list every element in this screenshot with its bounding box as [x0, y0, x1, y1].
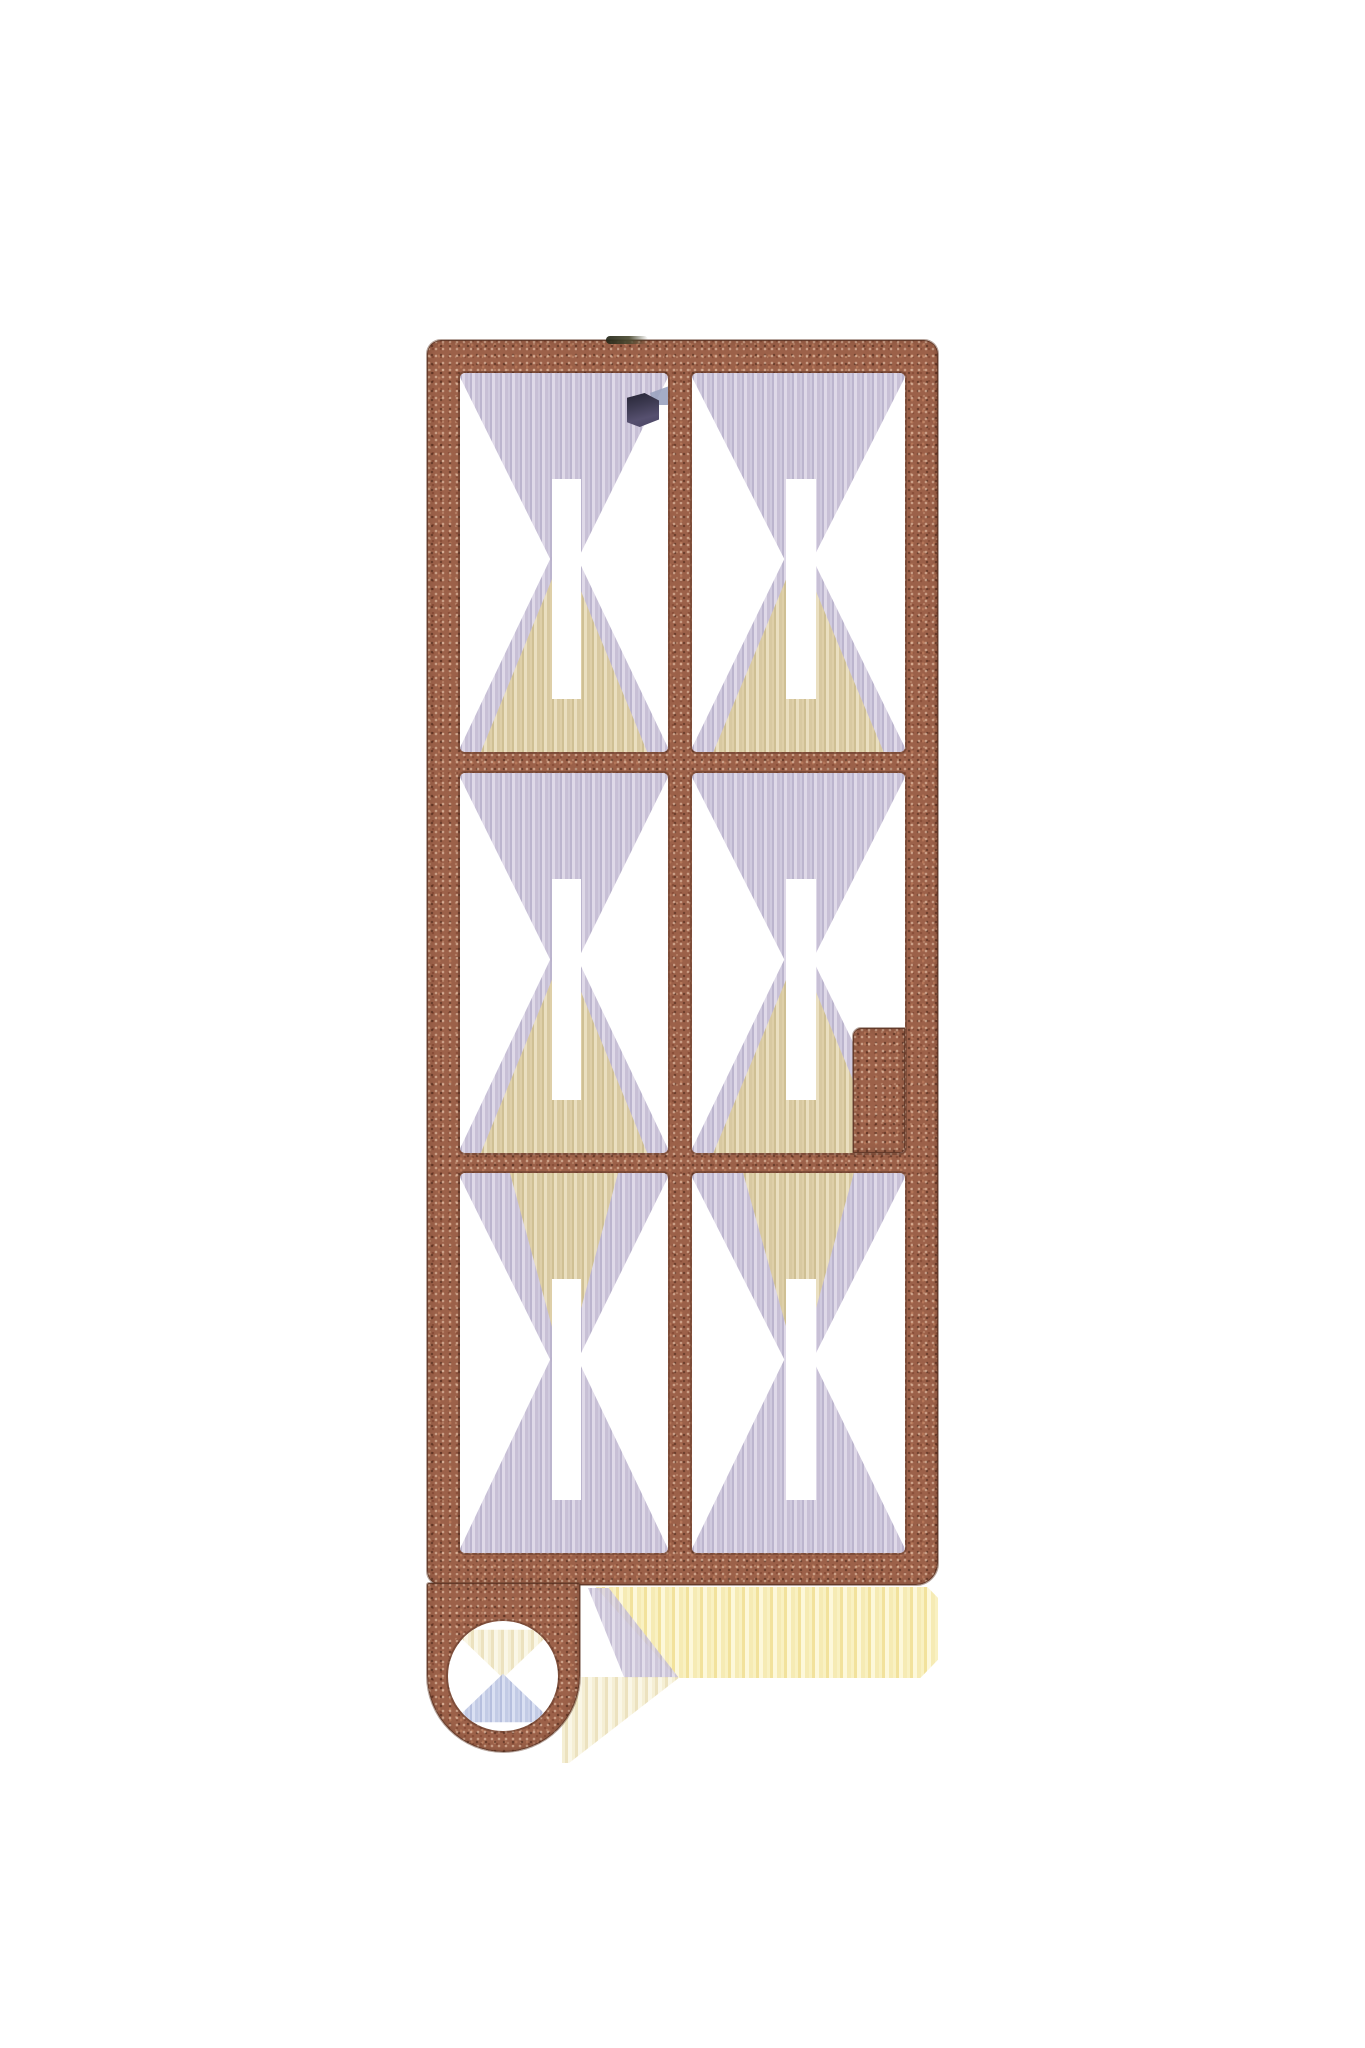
- render-artifact-bottom-tan: [692, 570, 905, 752]
- render-artifact-bottom-wedge: [460, 940, 668, 1153]
- opening-row2-right: [692, 773, 905, 1153]
- frame-body: [427, 340, 938, 1585]
- render-artifact-top-wedge: [460, 373, 668, 578]
- render-artifact-bottom-wedge: [460, 540, 668, 752]
- opening-row2-left: [460, 773, 668, 1153]
- render-artifact-white-column: [786, 879, 816, 1099]
- render-artifact-top-wedge: [692, 1173, 905, 1378]
- drop-shadow-cream-wedge: [562, 1677, 680, 1763]
- render-artifact-top-wedge: [692, 373, 905, 578]
- render-artifact-hole-top: [448, 1621, 558, 1731]
- render-artifact-bottom-wedge: [692, 540, 905, 752]
- render-artifact-hole-bottom: [448, 1621, 558, 1731]
- debris-artifact-sliver: [650, 385, 668, 405]
- render-artifact-top-wedge: [692, 773, 905, 978]
- photo-canvas: [0, 0, 1365, 2048]
- render-artifact-white-column: [552, 1279, 581, 1499]
- render-artifact-white-column: [552, 479, 581, 699]
- opening-row1-right: [692, 373, 905, 752]
- keychain-tab: [427, 1583, 580, 1752]
- render-artifact-bottom-wedge: [692, 1340, 905, 1553]
- render-artifact-bottom-wedge: [460, 1340, 668, 1553]
- render-artifact-white-column: [552, 879, 581, 1099]
- opening-row3-right: [692, 1173, 905, 1553]
- render-artifact-bottom-tan: [460, 570, 668, 752]
- render-artifact-top-wedge: [460, 1173, 668, 1378]
- opening-row3-left: [460, 1173, 668, 1553]
- surface-smudge: [606, 336, 648, 344]
- step-notch: [853, 1028, 905, 1153]
- render-artifact-white-column: [786, 479, 816, 699]
- render-artifact-bottom-tan: [460, 971, 668, 1153]
- debris-artifact-indigo: [627, 393, 659, 427]
- render-artifact-top-tan: [460, 1173, 668, 1340]
- render-artifact-top-wedge: [460, 773, 668, 978]
- keychain-hole: [448, 1621, 558, 1731]
- render-artifact-white-column: [786, 1279, 816, 1499]
- render-artifact-top-tan: [692, 1173, 905, 1340]
- opening-row1-left: [460, 373, 668, 752]
